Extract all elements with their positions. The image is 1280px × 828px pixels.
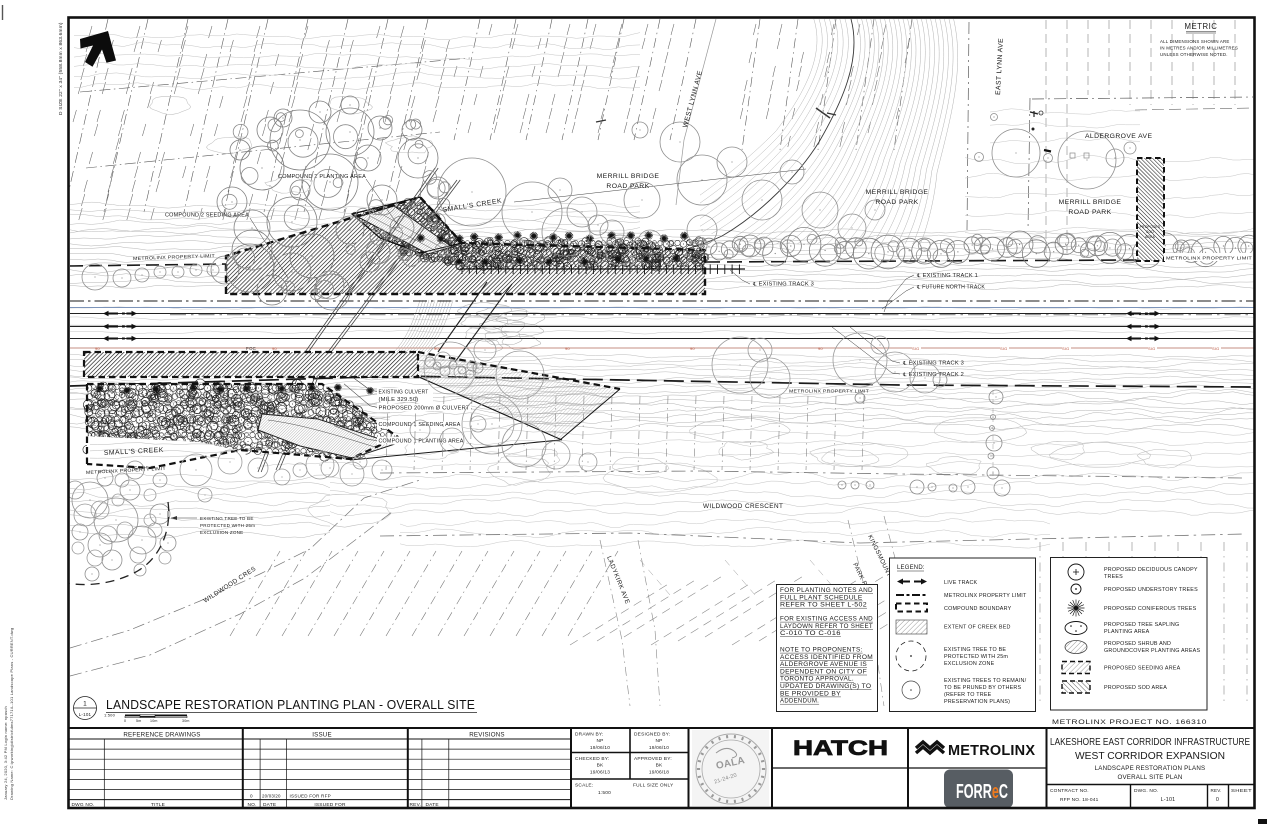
svg-text:TORONTO APPROVAL.: TORONTO APPROVAL. — [780, 676, 854, 683]
svg-text:PROPOSED SEEDING AREA: PROPOSED SEEDING AREA — [1104, 666, 1181, 672]
svg-text:0: 0 — [124, 719, 126, 723]
svg-text:COMPOUND 2 PLANTING AREA: COMPOUND 2 PLANTING AREA — [278, 174, 366, 180]
svg-text:ROAD PARK: ROAD PARK — [606, 183, 649, 190]
svg-text:℄ EXISTING TRACK 3: ℄ EXISTING TRACK 3 — [752, 282, 814, 288]
svg-text:(REFER TO TREE: (REFER TO TREE — [944, 692, 992, 698]
svg-text:PROPOSED TREE SAPLING: PROPOSED TREE SAPLING — [1104, 622, 1179, 628]
svg-text:L-101: L-101 — [1161, 797, 1176, 803]
svg-text:MERRILL BRIDGE: MERRILL BRIDGE — [597, 173, 660, 180]
svg-text:20/03/20: 20/03/20 — [262, 794, 281, 799]
svg-text:NP: NP — [596, 738, 603, 744]
svg-text:PROTECTED WITH 25m: PROTECTED WITH 25m — [944, 654, 1008, 660]
svg-text:METROLINX PROPERTY LIMIT: METROLINX PROPERTY LIMIT — [944, 593, 1027, 599]
svg-text:PROPOSED UNDERSTORY TREES: PROPOSED UNDERSTORY TREES — [1104, 587, 1198, 593]
svg-text:90: 90 — [272, 346, 277, 351]
svg-text:19/06/18: 19/06/18 — [649, 770, 669, 776]
svg-text:FOR EXISTING ACCESS AND: FOR EXISTING ACCESS AND — [780, 616, 873, 623]
svg-text:RFP NO. 18-041: RFP NO. 18-041 — [1060, 797, 1099, 803]
svg-text:CHECKED BY:: CHECKED BY: — [575, 756, 609, 762]
svg-text:PROPOSED SOD AREA: PROPOSED SOD AREA — [1104, 685, 1167, 691]
svg-text:FORReC: FORReC — [956, 781, 1008, 803]
svg-text:MERRILL BRIDGE: MERRILL BRIDGE — [866, 189, 929, 196]
svg-text:REFERENCE DRAWINGS: REFERENCE DRAWINGS — [123, 732, 200, 739]
svg-text:SIG: SIG — [912, 346, 920, 351]
svg-text:ADDENDUM.: ADDENDUM. — [780, 698, 819, 705]
svg-text:FOR PLANTING NOTES AND: FOR PLANTING NOTES AND — [780, 587, 873, 594]
svg-text:19/06/13: 19/06/13 — [590, 770, 610, 776]
svg-text:REVISIONS: REVISIONS — [469, 732, 505, 739]
svg-text:PRESERVATION PLANS): PRESERVATION PLANS) — [944, 699, 1010, 705]
svg-text:0: 0 — [250, 794, 253, 799]
svg-text:PROPOSED CONIFEROUS TREES: PROPOSED CONIFEROUS TREES — [1104, 606, 1197, 612]
svg-text:90: 90 — [690, 346, 695, 351]
svg-text:DWG. NO.: DWG. NO. — [1134, 788, 1159, 794]
svg-text:REV.: REV. — [1211, 788, 1222, 793]
svg-text:EXCLUSION ZONE: EXCLUSION ZONE — [200, 530, 243, 535]
svg-text:GROUNDCOVER PLANTING AREAS: GROUNDCOVER PLANTING AREAS — [1104, 648, 1200, 654]
svg-text:90: 90 — [818, 346, 823, 351]
svg-text:DEPENDENT ON CITY OF: DEPENDENT ON CITY OF — [780, 668, 867, 675]
svg-text:IN METRES AND/OR MILLIMETRES: IN METRES AND/OR MILLIMETRES — [1160, 46, 1238, 51]
svg-text:LANDSCAPE RESTORATION PLANS: LANDSCAPE RESTORATION PLANS — [1095, 765, 1206, 772]
svg-text:SCALE:: SCALE: — [575, 783, 593, 789]
svg-text:L-101: L-101 — [79, 712, 92, 717]
svg-text:PROPOSED 200mm Ø CULVERT: PROPOSED 200mm Ø CULVERT — [379, 405, 471, 411]
svg-text:ALDERGROVE AVENUE IS: ALDERGROVE AVENUE IS — [780, 661, 867, 668]
svg-text:MERRILL BRIDGE: MERRILL BRIDGE — [1059, 199, 1122, 206]
svg-text:METROLINX PROPERTY LIMIT: METROLINX PROPERTY LIMIT — [1166, 256, 1252, 261]
svg-text:PROPOSED DECIDUOUS CANOPY: PROPOSED DECIDUOUS CANOPY — [1104, 567, 1198, 573]
svg-text:DESIGNED BY:: DESIGNED BY: — [634, 732, 670, 738]
svg-text:FULL PLANT SCHEDULE: FULL PLANT SCHEDULE — [780, 594, 863, 601]
svg-text:TO BE PRUNED BY OTHERS: TO BE PRUNED BY OTHERS — [944, 685, 1021, 691]
svg-text:METROLINX PROPERTY LIMIT: METROLINX PROPERTY LIMIT — [789, 389, 869, 394]
svg-text:ALL DIMENSIONS SHOWN ARE: ALL DIMENSIONS SHOWN ARE — [1160, 39, 1230, 44]
svg-text:January 24, 2020, 3:42 PM Lo: January 24, 2020, 3:42 PM Login name: np… — [3, 706, 8, 800]
svg-text:PROPOSED SHRUB AND: PROPOSED SHRUB AND — [1104, 641, 1171, 647]
svg-text:5m: 5m — [136, 719, 141, 723]
svg-text:COMPOUND BOUNDARY: COMPOUND BOUNDARY — [944, 606, 1012, 612]
svg-text:HATCH: HATCH — [793, 737, 888, 760]
svg-text:10m: 10m — [150, 719, 158, 723]
svg-text:SIG: SIG — [1000, 346, 1008, 351]
svg-text:90: 90 — [565, 346, 570, 351]
svg-text:ROAD PARK: ROAD PARK — [1068, 209, 1111, 216]
svg-text:30m: 30m — [182, 719, 190, 723]
svg-text:COMPOUND 2 SEEDING AREA: COMPOUND 2 SEEDING AREA — [165, 213, 249, 219]
svg-text:EXISTING TREES TO REMAIN/: EXISTING TREES TO REMAIN/ — [944, 678, 1027, 684]
svg-text:℄ FUTURE NORTH TRACK: ℄ FUTURE NORTH TRACK — [916, 285, 985, 291]
svg-text:OVERALL SITE PLAN: OVERALL SITE PLAN — [1117, 774, 1182, 781]
svg-text:ROAD PARK: ROAD PARK — [875, 199, 918, 206]
svg-text:REFER TO SHEET L-502: REFER TO SHEET L-502 — [780, 602, 867, 609]
svg-text:LANDSCAPE RESTORATION PLANTING: LANDSCAPE RESTORATION PLANTING PLAN - OV… — [106, 697, 475, 712]
svg-text:ISSUE: ISSUE — [312, 732, 332, 739]
svg-text:ALDERGROVE AVE: ALDERGROVE AVE — [1085, 133, 1152, 140]
svg-text:LAKESHORE EAST CORRIDOR INFRAS: LAKESHORE EAST CORRIDOR INFRASTRUCTURE — [1050, 737, 1250, 748]
svg-text:BE PROVIDED BY: BE PROVIDED BY — [780, 690, 841, 697]
svg-text:(MILE 329.50): (MILE 329.50) — [379, 397, 419, 403]
svg-text:AREA: AREA — [1145, 235, 1156, 239]
svg-text:ISSUED FOR RFP: ISSUED FOR RFP — [290, 794, 331, 799]
svg-text:SHEET: SHEET — [1231, 788, 1252, 793]
svg-text:NP: NP — [655, 738, 662, 744]
svg-text:LEGEND:: LEGEND: — [897, 565, 925, 571]
svg-text:METROLINX: METROLINX — [948, 743, 1035, 759]
svg-text:EXISTING TREE TO BE: EXISTING TREE TO BE — [944, 647, 1006, 653]
svg-text:SIG: SIG — [1212, 346, 1220, 351]
svg-text:NOTE TO PROPONENTS:: NOTE TO PROPONENTS: — [780, 647, 863, 654]
svg-text:1:500: 1:500 — [598, 790, 611, 796]
svg-text:BK: BK — [656, 763, 663, 769]
svg-text:℄ EXISTING TRACK 1: ℄ EXISTING TRACK 1 — [916, 273, 978, 279]
svg-text:PROPOSED: PROPOSED — [1140, 225, 1161, 229]
svg-text:APPROVED BY:: APPROVED BY: — [634, 756, 672, 762]
svg-text:SIG: SIG — [1062, 346, 1070, 351]
svg-text:METROLINX PROJECT NO. 166: METROLINX PROJECT NO. 166310 — [1052, 719, 1207, 726]
svg-text:0: 0 — [1216, 797, 1219, 803]
svg-text:SOD: SOD — [1146, 230, 1154, 234]
svg-text:BK: BK — [597, 763, 604, 769]
svg-text:ACCESS IDENTIFIED FROM: ACCESS IDENTIFIED FROM — [780, 654, 873, 661]
svg-text:EXTENT OF CREEK BED: EXTENT OF CREEK BED — [944, 625, 1011, 631]
svg-text:D SIZE 22" x 34" (558.8mm x 86: D SIZE 22" x 34" (558.8mm x 863.6mm) — [58, 22, 64, 115]
svg-text:SIG: SIG — [1148, 346, 1156, 351]
svg-text:1: 1 — [83, 701, 87, 708]
svg-text:COMPOUND 1 PLANTING AREA: COMPOUND 1 PLANTING AREA — [379, 439, 464, 445]
svg-text:UPDATED DRAWING(S) TO: UPDATED DRAWING(S) TO — [780, 683, 871, 690]
svg-text:CONTRACT NO.: CONTRACT NO. — [1050, 788, 1089, 794]
svg-text:EXISTING CULVERT: EXISTING CULVERT — [379, 390, 430, 396]
svg-text:WEST CORRIDOR EXPANSION: WEST CORRIDOR EXPANSION — [1075, 751, 1225, 762]
svg-text:DRAWN BY:: DRAWN BY: — [575, 732, 604, 738]
svg-text:19/06/10: 19/06/10 — [649, 745, 669, 751]
svg-text:METRIC: METRIC — [1185, 22, 1218, 31]
svg-text:EXCLUSION ZONE: EXCLUSION ZONE — [944, 661, 995, 667]
svg-text:C-010 TO C-016: C-010 TO C-016 — [780, 630, 841, 637]
svg-text:LIVE TRACK: LIVE TRACK — [944, 580, 978, 586]
svg-text:EXISTING TREE TO BE: EXISTING TREE TO BE — [200, 516, 254, 521]
svg-text:LAYDOWN REFER TO SHEET: LAYDOWN REFER TO SHEET — [780, 623, 873, 630]
svg-text:UNLESS OTHERWISE NOTED.: UNLESS OTHERWISE NOTED. — [1160, 52, 1228, 57]
svg-text:WILDWOOD CRESCENT: WILDWOOD CRESCENT — [703, 503, 783, 510]
svg-text:1:500: 1:500 — [104, 713, 116, 718]
svg-text:19/06/10: 19/06/10 — [590, 745, 610, 751]
svg-text:FOC: FOC — [246, 346, 257, 351]
svg-text:TREES: TREES — [1104, 574, 1123, 580]
svg-text:PLANTING AREA: PLANTING AREA — [1104, 629, 1150, 635]
svg-text:Drawing Name: C:\pworking\dist: Drawing Name: C:\pworking\district\dms77… — [9, 628, 14, 800]
svg-text:COMPOUND 1 SEEDING AREA: COMPOUND 1 SEEDING AREA — [379, 422, 461, 428]
svg-text:PROTECTED WITH 25m: PROTECTED WITH 25m — [200, 523, 255, 528]
svg-text:FULL SIZE ONLY: FULL SIZE ONLY — [633, 783, 674, 789]
svg-text:90: 90 — [95, 346, 100, 351]
